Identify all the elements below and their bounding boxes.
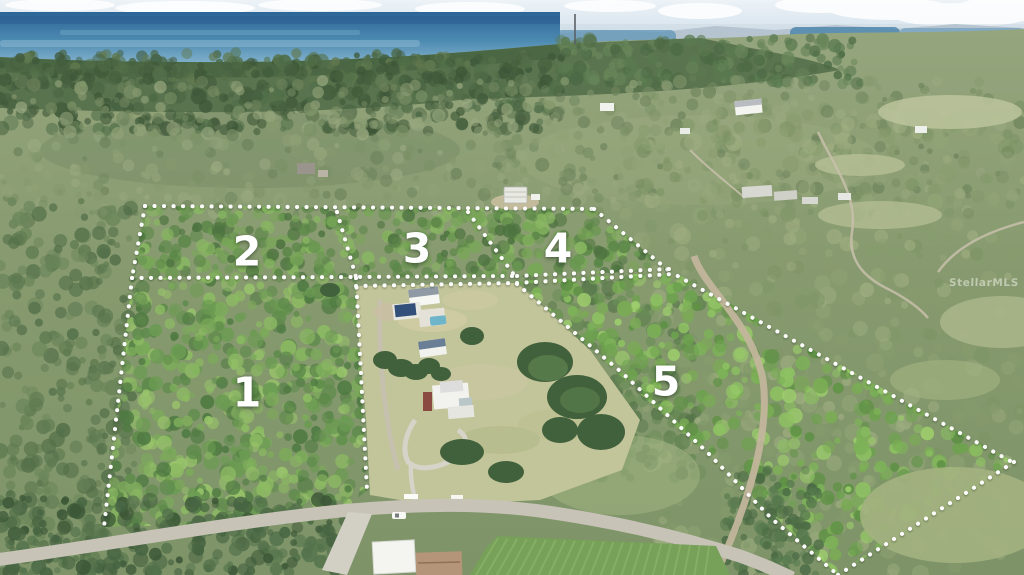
parcel-label-1: 1 (233, 373, 262, 414)
boundary-left-edge-parcel2 (132, 206, 145, 278)
boundary-bottom-parcel4 (517, 269, 670, 276)
parcel-label-5: 5 (652, 362, 681, 403)
boundary-top-edge-parcel5 (517, 274, 1012, 462)
boundary-bottom-parcels-2-3 (132, 276, 517, 278)
parcel-label-3: 3 (403, 229, 432, 270)
boundary-divider-1-estate (356, 278, 367, 490)
boundary-top-edge (145, 206, 594, 209)
boundary-bottom-edge-parcel5 (838, 462, 1014, 575)
parcel-label-2: 2 (233, 232, 262, 273)
boundary-left-edge-parcel1 (104, 278, 132, 527)
boundary-estate-top (356, 283, 517, 286)
boundary-left-edge-parcel5 (517, 284, 838, 575)
parcel-boundary-overlay (0, 0, 1024, 575)
parcel-label-4: 4 (544, 229, 573, 270)
boundary-divider-2-3 (337, 212, 356, 277)
aerial-parcel-photo: 1 2 3 4 5 StellarMLS (0, 0, 1024, 575)
boundary-divider-3-4 (468, 212, 517, 279)
boundary-right-edge-parcel4 (594, 209, 668, 270)
mls-watermark: StellarMLS (949, 277, 1019, 289)
